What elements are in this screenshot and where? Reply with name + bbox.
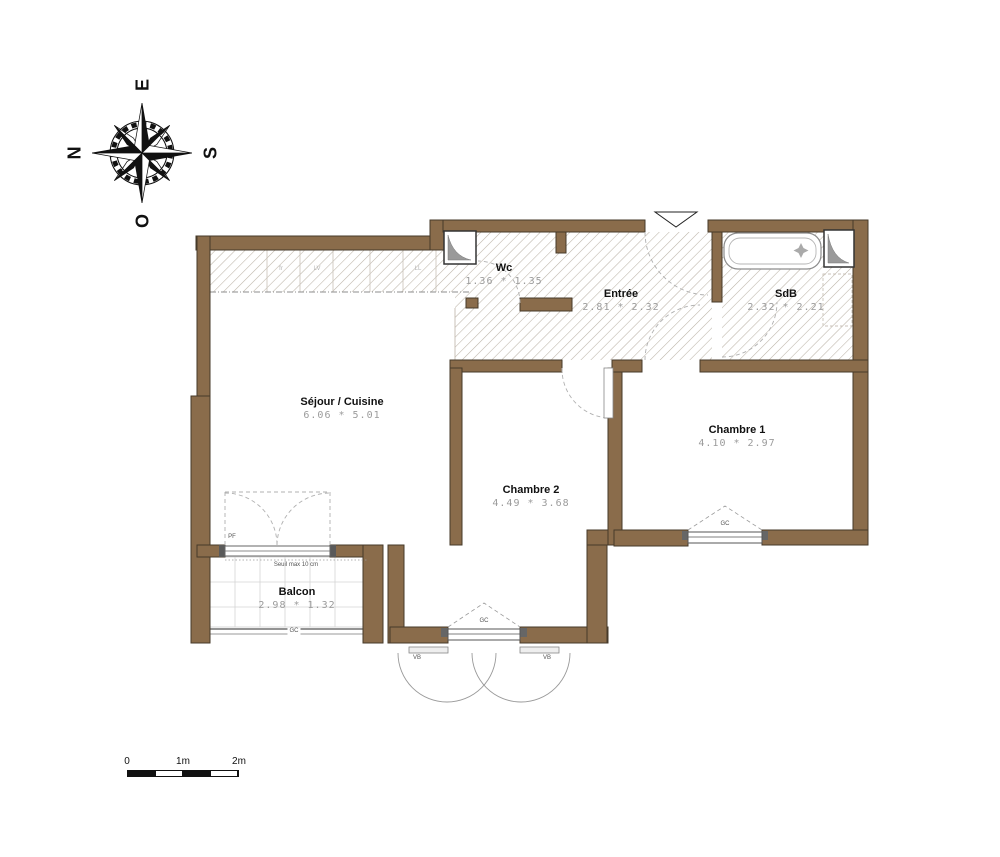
room-label-balcon: Balcon 2.98 * 1.32 bbox=[258, 586, 335, 612]
chambre2-door-swing bbox=[562, 368, 610, 418]
appliance-label-fr: fr bbox=[279, 266, 283, 273]
scale-track bbox=[127, 770, 239, 777]
room-name: Balcon bbox=[258, 586, 335, 599]
room-name: SdB bbox=[747, 288, 824, 301]
seuil-note: Seuil max 10 cm bbox=[274, 562, 318, 569]
scale-segment bbox=[128, 771, 155, 776]
room-label-wc: Wc 1.36 * 1.35 bbox=[465, 262, 542, 288]
room-name: Chambre 1 bbox=[698, 424, 775, 437]
room-dims: 2.81 * 2.32 bbox=[582, 301, 659, 314]
room-dims: 4.10 * 2.97 bbox=[698, 437, 775, 450]
scale-segment bbox=[183, 771, 210, 776]
scale-segment bbox=[155, 771, 184, 776]
scale-label-1m: 1m bbox=[176, 756, 190, 767]
room-dims: 1.36 * 1.35 bbox=[465, 275, 542, 288]
room-dims: 4.49 * 3.68 bbox=[492, 497, 569, 510]
floor-plan bbox=[0, 0, 1000, 857]
room-dims: 2.32 * 2.21 bbox=[747, 301, 824, 314]
scale-label-0: 0 bbox=[124, 756, 130, 767]
room-label-chambre2: Chambre 2 4.49 * 3.68 bbox=[492, 484, 569, 510]
room-dims: 6.06 * 5.01 bbox=[300, 409, 383, 422]
room-dims: 2.98 * 1.32 bbox=[258, 599, 335, 612]
room-label-entree: Entrée 2.81 * 2.32 bbox=[582, 288, 659, 314]
gc-label-chambre1: GC bbox=[721, 521, 730, 528]
room-label-sejour: Séjour / Cuisine 6.06 * 5.01 bbox=[300, 396, 383, 422]
gc-label-balcon: GC bbox=[288, 628, 301, 635]
technical-duct-right bbox=[824, 230, 854, 267]
vb-label-right: VB bbox=[543, 655, 551, 662]
room-name: Chambre 2 bbox=[492, 484, 569, 497]
kitchen-counter-strip bbox=[210, 250, 470, 292]
entrance-arrow-icon bbox=[655, 212, 697, 227]
technical-duct-left bbox=[444, 231, 476, 264]
scale-segment bbox=[210, 771, 239, 776]
room-label-sdb: SdB 2.32 * 2.21 bbox=[747, 288, 824, 314]
gc-label-chambre2: GC bbox=[480, 618, 489, 625]
chambre2-door-leaf bbox=[604, 368, 613, 418]
room-name: Entrée bbox=[582, 288, 659, 301]
appliance-label-lv: LV bbox=[314, 266, 321, 273]
room-label-chambre1: Chambre 1 4.10 * 2.97 bbox=[698, 424, 775, 450]
appliance-label-ll: LL bbox=[415, 266, 422, 273]
room-name: Wc bbox=[465, 262, 542, 275]
vb-label-left: VB bbox=[413, 655, 421, 662]
pf-label: PF bbox=[228, 534, 236, 541]
room-name: Séjour / Cuisine bbox=[300, 396, 383, 409]
bathtub bbox=[724, 233, 821, 269]
scale-label-2m: 2m bbox=[232, 756, 246, 767]
scale-bar: 0 1m 2m bbox=[127, 756, 239, 780]
